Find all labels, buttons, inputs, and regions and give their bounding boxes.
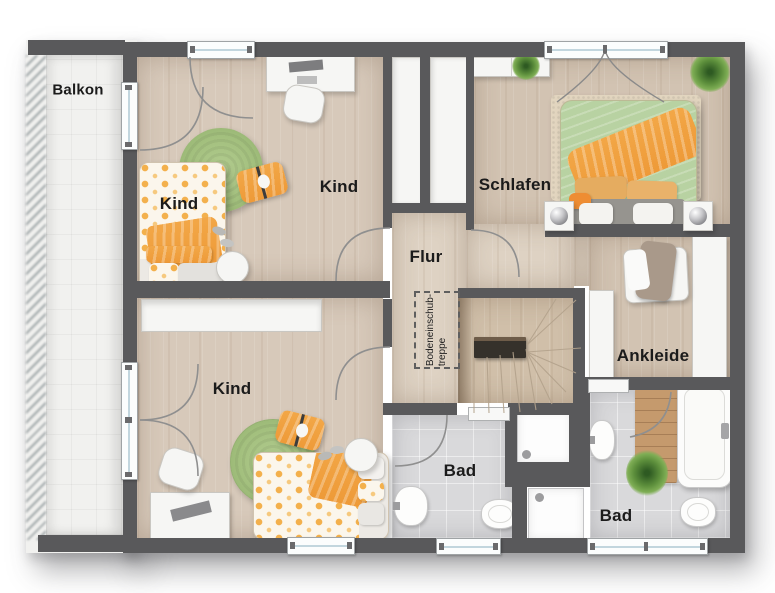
wall	[137, 281, 390, 298]
pillow	[358, 503, 384, 525]
floorplan-canvas: Bodeneinschub- treppe	[0, 0, 775, 593]
floor-ankleide-entry	[574, 237, 590, 286]
wall-balcony	[38, 535, 137, 552]
built-in-closet	[430, 57, 470, 205]
shower	[528, 488, 584, 540]
window	[587, 538, 708, 555]
wall	[383, 403, 457, 415]
ball-lamp-icon	[550, 207, 568, 225]
bench-with-clothes	[624, 242, 688, 302]
desk	[150, 492, 230, 540]
wall	[730, 42, 745, 553]
floor-balcony	[46, 55, 123, 535]
wall	[383, 299, 392, 347]
washbasin	[589, 420, 615, 460]
balcony-door	[121, 82, 138, 150]
tub-inner	[684, 388, 725, 480]
door-leaf	[468, 407, 510, 421]
plant-icon	[690, 52, 730, 92]
monitor	[289, 60, 324, 73]
door-leaf	[588, 379, 629, 393]
stair-stringer-shadow	[458, 298, 474, 403]
shower-head-icon	[522, 450, 531, 459]
room-label-schlafen: Schlafen	[479, 175, 551, 195]
room-label-balkon: Balkon	[52, 82, 103, 99]
monitor	[170, 500, 212, 521]
window	[287, 537, 355, 555]
pillow	[633, 203, 673, 225]
shower-head-icon	[535, 493, 544, 502]
wall	[383, 203, 466, 213]
balcony-railing-hatch	[26, 55, 46, 540]
washbasin	[394, 486, 428, 526]
room-label-bad-left: Bad	[444, 461, 477, 481]
office-chair	[281, 83, 327, 125]
wall	[505, 462, 590, 487]
wall	[512, 487, 527, 540]
wall	[505, 415, 517, 463]
balcony-double-door	[121, 362, 138, 480]
wall	[458, 288, 585, 298]
wall	[545, 224, 745, 237]
keyboard	[297, 76, 317, 84]
nightstand	[683, 201, 713, 231]
bed-schlafen	[560, 100, 697, 230]
stair-opening	[474, 337, 526, 358]
ball-lamp-icon	[689, 207, 707, 225]
attic-hatch: Bodeneinschub- treppe	[414, 291, 460, 369]
toilet	[680, 497, 716, 527]
window	[187, 41, 255, 59]
room-label-kind-bottom: Kind	[213, 379, 252, 399]
shower	[517, 410, 572, 464]
plant-icon	[626, 450, 668, 496]
room-label-kind-top-right: Kind	[320, 177, 359, 197]
wall	[581, 390, 590, 487]
pillow	[146, 246, 212, 263]
built-in-closet	[392, 57, 422, 205]
faucet-icon	[721, 423, 729, 439]
wardrobe	[141, 299, 322, 332]
nightstand	[544, 201, 574, 231]
wardrobe	[589, 290, 614, 380]
window	[544, 41, 668, 59]
side-table	[216, 251, 249, 284]
wall	[466, 42, 474, 230]
room-label-flur: Flur	[410, 247, 443, 267]
faucet-icon	[393, 502, 400, 510]
room-label-kind-top-left: Kind	[160, 194, 199, 214]
room-label-bad-right: Bad	[600, 506, 633, 526]
room-label-ankleide: Ankleide	[617, 346, 689, 366]
attic-hatch-label: Bodeneinschub- treppe	[425, 294, 449, 366]
side-table	[344, 438, 378, 472]
pillow	[579, 203, 613, 225]
wall	[420, 57, 430, 203]
plush-bunny	[256, 173, 271, 190]
pillow	[358, 481, 384, 501]
wardrobe	[692, 236, 727, 380]
wall-balcony	[28, 40, 125, 55]
window	[436, 538, 501, 555]
bathtub	[677, 380, 732, 488]
